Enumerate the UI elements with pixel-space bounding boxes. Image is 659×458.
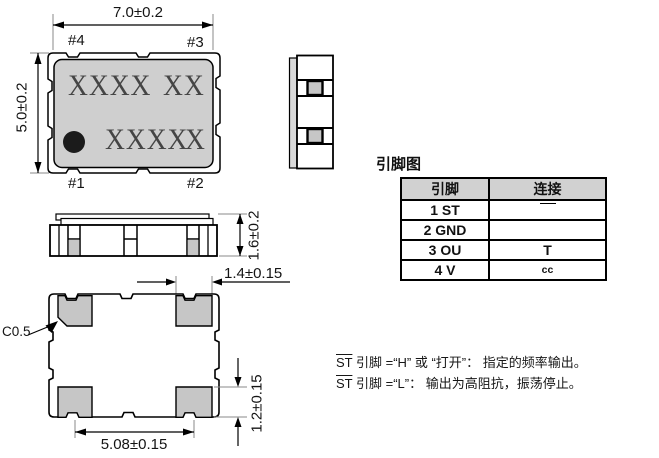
front-view [50,214,217,256]
st-overline-text: ST [336,376,352,391]
row4-pin: 4 V [402,261,490,279]
dim-pad-height-label: 1.2±0.15 [249,368,266,440]
dim-pitch-label: 5.08±0.15 [89,436,179,453]
dim-pad-width-label: 1.4±0.15 [224,265,282,282]
row1-connect [490,201,605,219]
row4-connect: cc [490,261,605,279]
row2-pin: 2 GND [402,221,490,239]
dim-width-label: 7.0±0.2 [98,4,178,21]
pin1-index-dot [63,131,85,153]
col-header-connect: 连接 [490,179,605,199]
dim-height-label: 5.0±0.2 [14,78,31,138]
row1-pin: 1 ST [402,201,490,219]
chamfer-label: C0.5 [2,324,31,339]
pad-1-chamfered [58,296,92,326]
table-row: 2 GND [402,219,605,239]
pad-2 [176,296,212,326]
table-row: 4 V cc [402,259,605,279]
marking-line1-right: XX [163,69,205,103]
dim-thickness-label: 1.6±0.2 [246,206,263,266]
side-view [290,56,334,169]
pin1-label: #1 [68,175,85,192]
st-pin-notes: ST 引脚 =“H” 或 “打开”： 指定的频率输出。 ST 引脚 =“L”： … [336,352,587,394]
pad-3 [58,387,92,417]
table-row: 1 ST [402,199,605,219]
st-overline-mark [540,203,556,204]
row3-connect: T [490,241,605,259]
note-line-1: ST 引脚 =“H” 或 “打开”： 指定的频率输出。 [336,352,587,373]
row2-connect [490,221,605,239]
pin3-label: #3 [187,34,204,51]
pad-4 [176,387,212,417]
marking-line2-left: XXXX [105,123,188,157]
bottom-view [28,294,219,417]
col-header-pin: 引脚 [402,179,490,199]
pin4-label: #4 [68,32,85,49]
marking-line2-right: X [185,123,206,157]
pin2-label: #2 [187,175,204,192]
package-drawing-page: 7.0±0.2 #4 #3 #1 #2 5.0±0.2 XXXX XX XXXX… [0,0,659,458]
st-overline-text: ST [336,355,352,370]
dim-height-lines [30,53,49,173]
note-line-2-text: 引脚 =“L”： 输出为高阻抗，振荡停止。 [352,376,581,391]
pin-table: 引脚 连接 1 ST 2 GND 3 OU T 4 V cc [400,177,607,281]
table-row: 3 OU T [402,239,605,259]
note-line-2: ST 引脚 =“L”： 输出为高阻抗，振荡停止。 [336,373,587,394]
row3-pin: 3 OU [402,241,490,259]
pin-table-title: 引脚图 [376,153,421,174]
pin-table-header: 引脚 连接 [402,179,605,199]
note-line-1-text: 引脚 =“H” 或 “打开”： 指定的频率输出。 [352,355,586,370]
marking-line1-left: XXXX [68,69,151,103]
dim-thickness-lines [218,214,247,256]
